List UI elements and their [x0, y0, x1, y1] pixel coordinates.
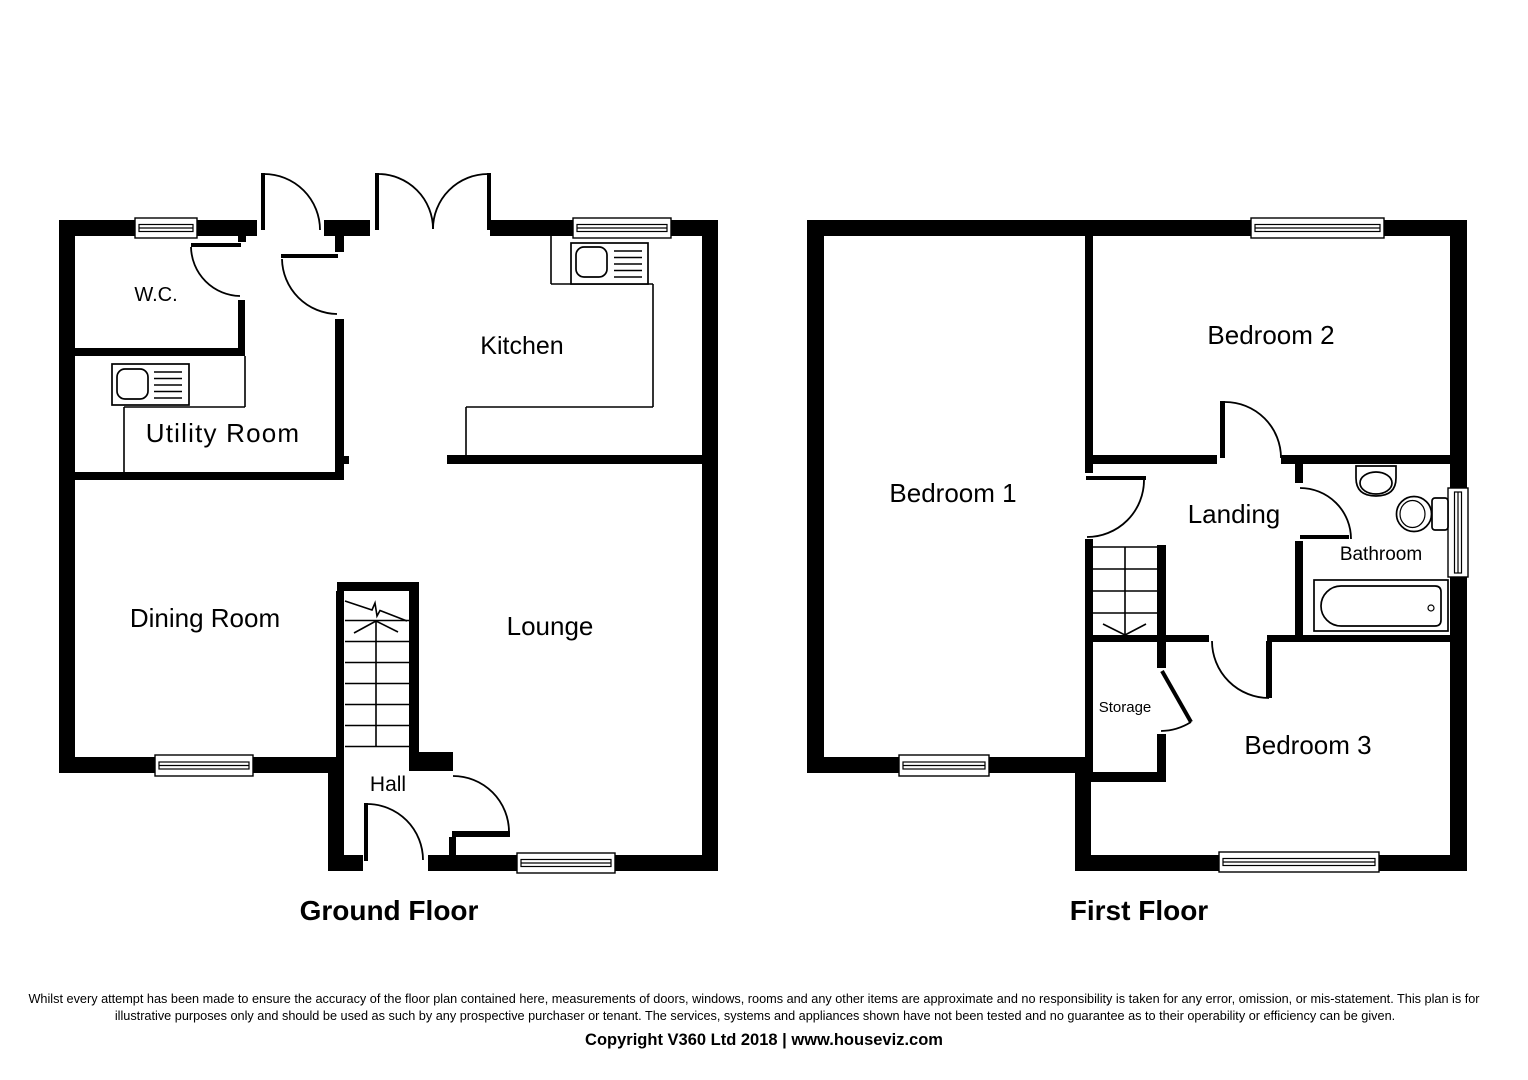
svg-text:Utility Room: Utility Room [146, 418, 301, 448]
svg-text:First Floor: First Floor [1070, 895, 1209, 926]
svg-text:Landing: Landing [1188, 499, 1281, 529]
svg-text:Bedroom 1: Bedroom 1 [889, 478, 1016, 508]
svg-text:illustrative purposes only and: illustrative purposes only and should be… [115, 1009, 1395, 1023]
svg-text:Whilst every attempt has been: Whilst every attempt has been made to en… [28, 992, 1480, 1006]
svg-text:Copyright V360 Ltd 2018 | www.: Copyright V360 Ltd 2018 | www.houseviz.c… [585, 1031, 943, 1049]
svg-text:Kitchen: Kitchen [480, 332, 563, 360]
svg-text:Bedroom 3: Bedroom 3 [1244, 730, 1371, 760]
svg-text:Bathroom: Bathroom [1340, 544, 1422, 565]
svg-text:Dining Room: Dining Room [130, 603, 280, 633]
svg-text:Storage: Storage [1099, 699, 1152, 716]
svg-text:Lounge: Lounge [507, 611, 594, 641]
svg-text:Ground Floor: Ground Floor [300, 895, 479, 926]
svg-text:Bedroom 2: Bedroom 2 [1207, 320, 1334, 350]
svg-text:Hall: Hall [370, 773, 406, 796]
svg-text:W.C.: W.C. [134, 284, 177, 306]
